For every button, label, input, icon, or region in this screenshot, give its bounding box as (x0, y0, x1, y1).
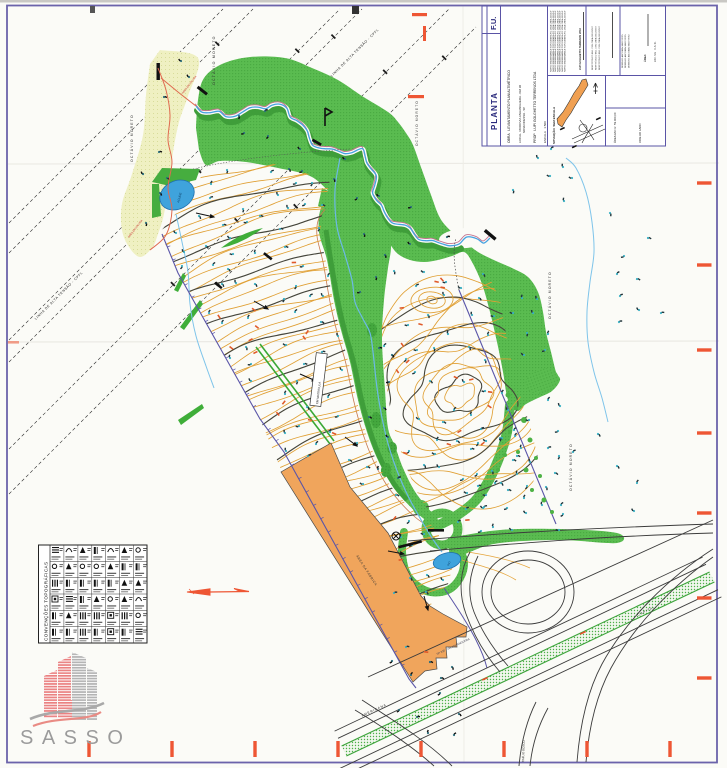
svg-text:F.U.: F.U. (489, 17, 498, 30)
svg-text:ESC. S/E FLS. 01: ESC. S/E FLS. 01 (654, 41, 657, 62)
svg-text:PLANTA: PLANTA (490, 92, 499, 130)
svg-text:OCTÁVIO MORETO: OCTÁVIO MORETO (130, 114, 134, 162)
svg-text:PROP LUPI GOLGHETTO TERRENO: PROP LUPI GOLGHETTO TERRENOS LTDA (533, 71, 537, 143)
svg-text:OCTÁVIO MORETO: OCTÁVIO MORETO (415, 100, 419, 146)
svg-text:DESENHO: ABC DATA: MAIO VI: DESENHO: ABC DATA: MAIO VISTO: (624, 34, 627, 68)
svg-text:OCTÁVIO MORETO: OCTÁVIO MORETO (569, 443, 573, 491)
svg-text:SITUAÇÃO SEM ESCALA: SITUAÇÃO SEM ESCALA (551, 106, 556, 144)
svg-text:RESP. TÉCNICO ENG. CIVIL CREA: RESP. TÉCNICO ENG. CIVIL CREA 0601234567 (598, 25, 601, 70)
svg-text:ESCALA 1:500: ESCALA 1:500 (543, 121, 547, 143)
svg-text:RESP. TÉCNICO ENG. CIVIL CREA: RESP. TÉCNICO ENG. CIVIL CREA 0601234567 (591, 25, 594, 70)
svg-text:ÁREA EM m² 59.000,00: ÁREA EM m² 59.000,00 (613, 112, 617, 143)
svg-text:VIDE AO LADO: VIDE AO LADO (638, 123, 642, 143)
svg-text:LUPI GOLGHETTO TERRENOS LTDA: LUPI GOLGHETTO TERRENOS LTDA (579, 28, 582, 70)
svg-text:SASSO ENGENHARIA E TOPOGRAFIA: SASSO ENGENHARIA E TOPOGRAFIA S/C LTDA C… (563, 10, 566, 72)
svg-text:NOVA ODESSA - SP: NOVA ODESSA - SP (522, 107, 526, 133)
svg-text:EMÍLIO BOSCO: EMÍLIO BOSCO (521, 739, 526, 762)
svg-text:DESENHO: ABC DATA: MAIO VI: DESENHO: ABC DATA: MAIO VISTO: (627, 34, 630, 68)
svg-text:OBRA LEVANTAMENTO PLANIALTIM: OBRA LEVANTAMENTO PLANIALTIMÉTRICO (506, 70, 511, 143)
svg-text:RESP. TÉCNICO ENG. CIVIL CREA: RESP. TÉCNICO ENG. CIVIL CREA 0601234567 (594, 25, 597, 70)
svg-text:SASSO: SASSO (20, 727, 131, 749)
svg-text:OCTÁVIO MORETO: OCTÁVIO MORETO (548, 271, 552, 319)
svg-text:DESENHO: ABC DATA: MAIO VI: DESENHO: ABC DATA: MAIO VISTO: (621, 34, 624, 68)
svg-text:OCTÁVIO MORETO: OCTÁVIO MORETO (212, 35, 216, 85)
svg-text:CONVENÇÕES TOPOGRÁFICAS: CONVENÇÕES TOPOGRÁFICAS (43, 562, 49, 641)
